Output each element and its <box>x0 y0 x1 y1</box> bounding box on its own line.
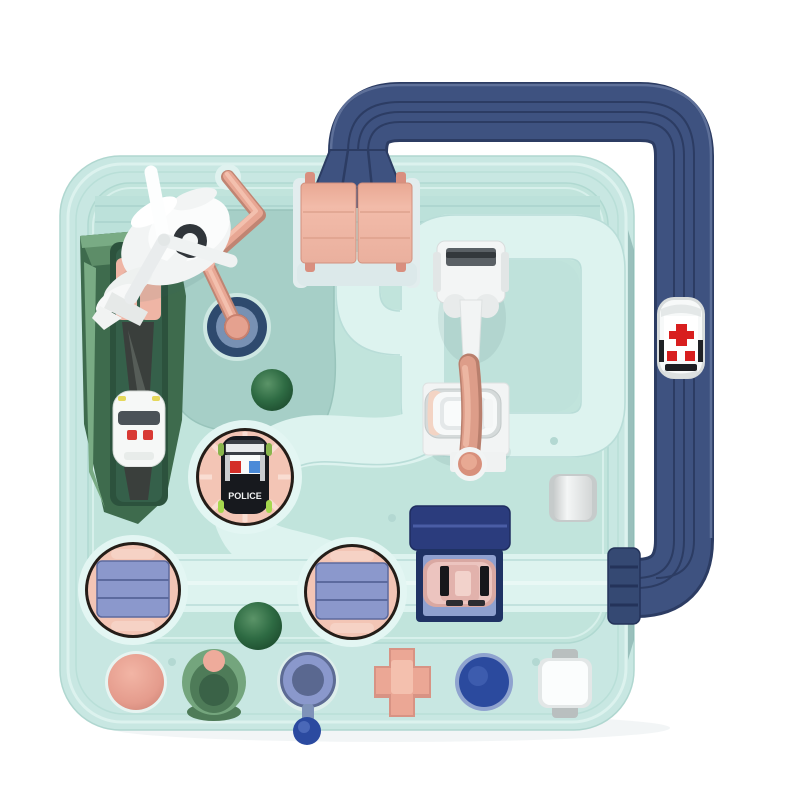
svg-text:POLICE: POLICE <box>228 491 262 501</box>
